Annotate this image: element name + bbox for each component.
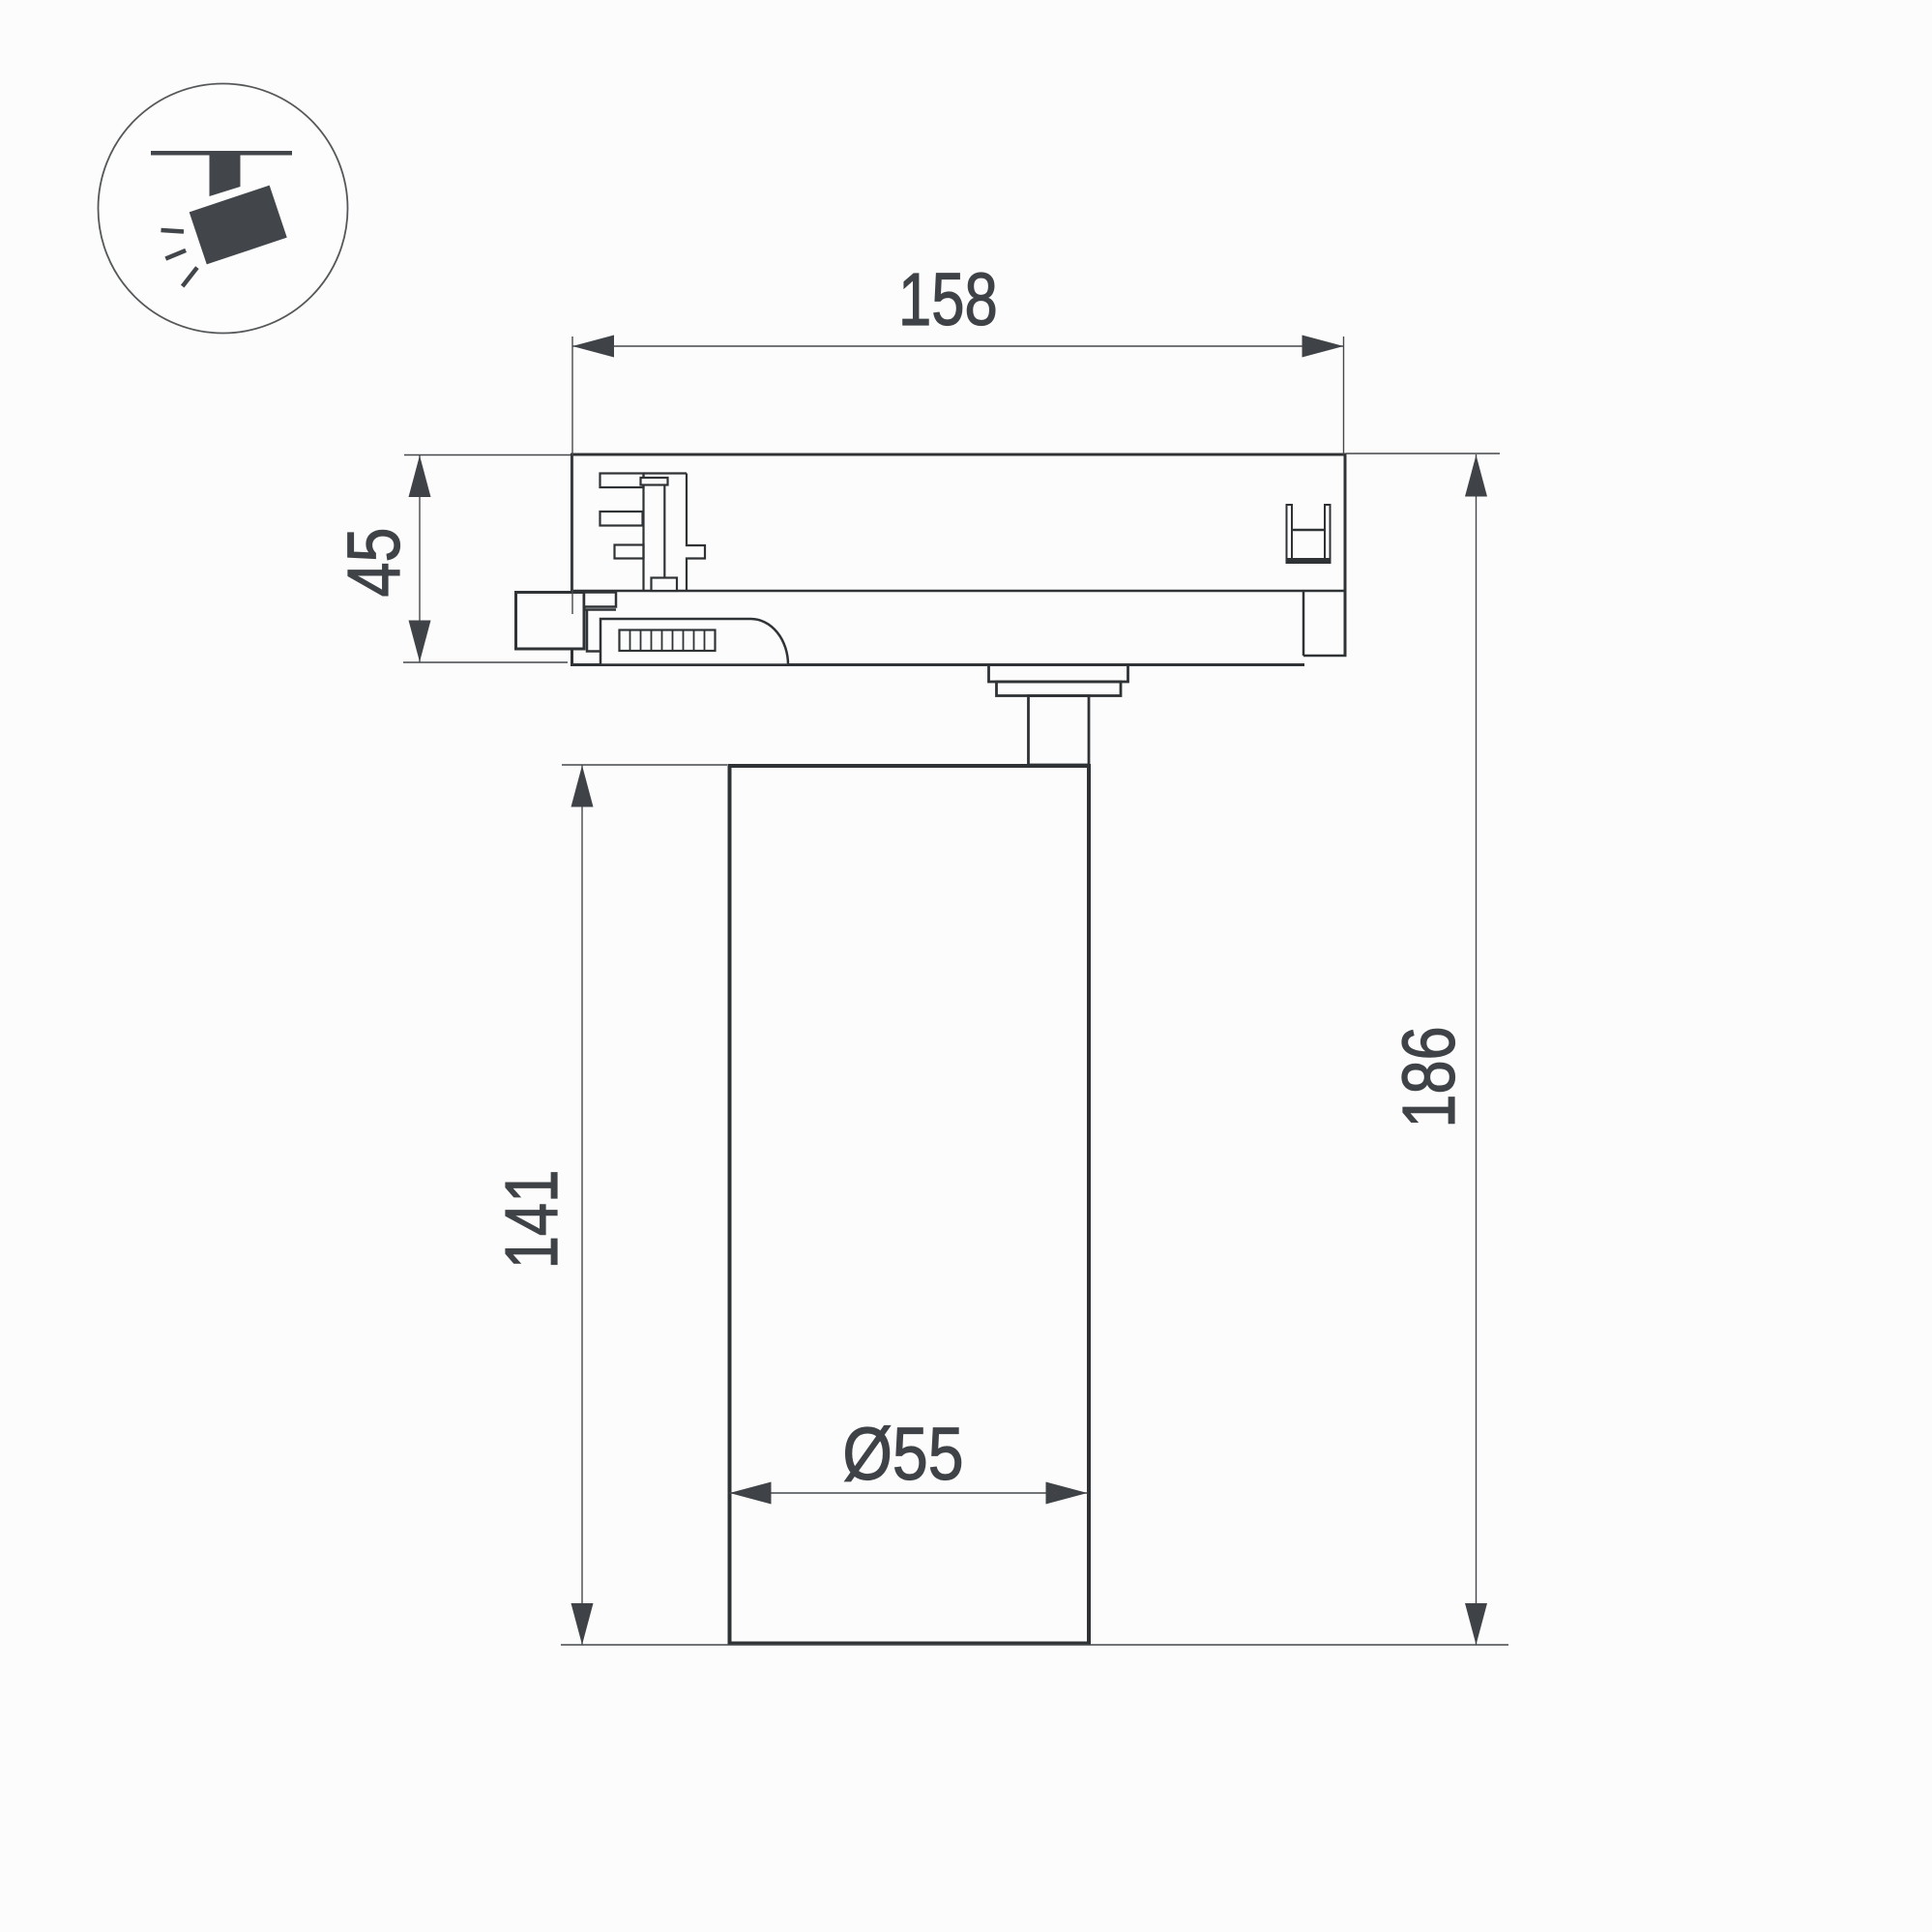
svg-text:158: 158 [898,257,998,340]
svg-text:141: 141 [489,1170,572,1270]
svg-text:186: 186 [1387,1026,1470,1127]
svg-text:Ø55: Ø55 [842,1413,963,1496]
svg-text:45: 45 [334,528,417,598]
